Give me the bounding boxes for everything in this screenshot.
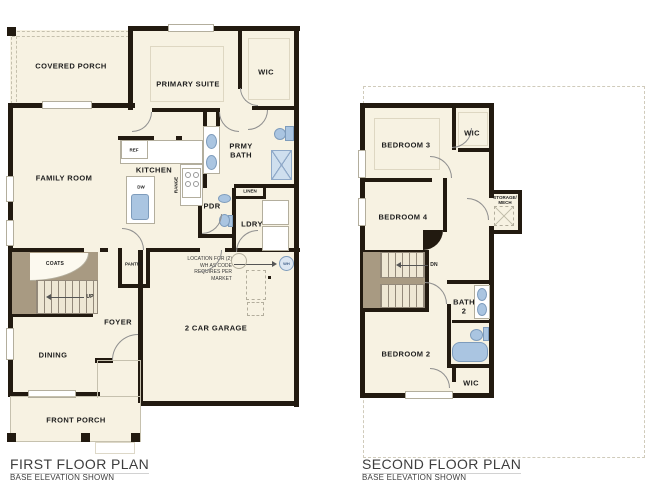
burner: [185, 172, 191, 178]
wall: [452, 368, 456, 382]
burner: [193, 172, 199, 178]
wall: [146, 248, 200, 252]
wh-location-box: [246, 270, 266, 300]
porch-post: [7, 27, 16, 36]
bath2-sink: [477, 303, 487, 316]
wall: [489, 230, 521, 234]
wall: [447, 280, 493, 284]
window: [42, 101, 92, 109]
wall: [360, 178, 432, 182]
toilet-bowl: [470, 329, 483, 341]
toilet-bowl: [274, 128, 286, 140]
range-label: RANGE: [174, 177, 179, 193]
dn-arrow-line: [400, 265, 428, 266]
room-label-garage: 2 CAR GARAGE: [185, 324, 247, 333]
porch-roof-dash: [12, 36, 129, 37]
wall: [198, 234, 236, 238]
first-floor-subtitle: BASE ELEVATION SHOWN: [10, 473, 114, 482]
room-label-foyer: FOYER: [104, 318, 132, 327]
wh-arrowhead: [272, 261, 277, 267]
room-label-primary-suite: PRIMARY SUITE: [156, 80, 220, 89]
floor-plan-canvas: REF RANGE DW LOCATION FOR (2) WH AS CODE…: [0, 0, 650, 487]
room-label-bedroom4: BEDROOM 4: [378, 213, 427, 222]
room-label-prmy-bath: PRMY BATH: [222, 142, 260, 159]
bath-sink: [206, 134, 217, 149]
porch-step: [95, 442, 135, 454]
window: [6, 328, 14, 360]
porch-post: [131, 433, 140, 442]
room-label-dining: DINING: [39, 351, 68, 360]
wall: [360, 103, 494, 108]
wall: [234, 196, 266, 199]
window: [6, 176, 14, 202]
dn-arrowhead: [396, 262, 401, 268]
porch-roof-dash: [11, 32, 12, 104]
window: [405, 391, 453, 399]
wall: [238, 31, 242, 89]
room-label-kitchen: KITCHEN: [136, 166, 172, 175]
wall: [141, 401, 299, 406]
wh-location-box: [247, 302, 264, 316]
bath2-sink: [477, 288, 487, 301]
wall: [234, 184, 298, 188]
wall: [489, 190, 521, 194]
window: [6, 220, 14, 246]
second-floor-subtitle: BASE ELEVATION SHOWN: [362, 473, 466, 482]
window: [358, 198, 366, 226]
room-label-bedroom2: BEDROOM 2: [381, 350, 430, 359]
wall: [118, 248, 122, 288]
room-label-bedroom3: BEDROOM 3: [381, 141, 430, 150]
room-label-wic-lower: WIC: [463, 379, 479, 388]
bathtub: [452, 342, 488, 362]
bath-sink: [206, 155, 217, 170]
wall: [363, 308, 428, 312]
mech-unit-box: [494, 206, 514, 226]
room-label-storage-mech: STORAGE/ MECH: [490, 195, 520, 205]
wall: [128, 26, 300, 31]
suite-rug-outline: [150, 46, 224, 102]
wall: [128, 26, 133, 110]
room-label-pantry: PANTRY: [125, 262, 143, 267]
up-arrow-line: [50, 297, 84, 298]
up-arrowhead: [46, 294, 51, 300]
second-floor-title: SECOND FLOOR PLAN: [362, 456, 521, 474]
window: [358, 150, 366, 178]
wall: [458, 148, 494, 152]
porch-post: [81, 433, 90, 442]
dishwasher-label: DW: [137, 185, 145, 190]
first-floor-title: FIRST FLOOR PLAN: [10, 456, 149, 474]
coats-label: COATS: [46, 261, 64, 267]
wall: [443, 178, 447, 232]
dn-label: DN: [430, 262, 438, 268]
porch-roof-dash: [12, 31, 129, 32]
burner: [185, 181, 191, 187]
room-label-linen: LINEN: [243, 189, 257, 194]
marker-dot: [268, 276, 271, 279]
toilet-tank: [483, 327, 489, 341]
wall: [263, 184, 266, 199]
wall: [294, 26, 299, 407]
porch-post: [7, 433, 16, 442]
shower: [271, 150, 292, 180]
washer: [262, 200, 289, 225]
toilet-tank: [285, 126, 294, 141]
porch-roof-dash: [16, 36, 17, 102]
ref-label: REF: [130, 148, 139, 153]
room-label-front-porch: FRONT PORCH: [46, 416, 105, 425]
wall: [452, 320, 493, 323]
room-label-wic-upper: WIC: [464, 129, 480, 138]
burner: [193, 181, 199, 187]
stairs-down-lower: [380, 284, 425, 308]
wh-location-circle: [231, 253, 247, 269]
window: [168, 24, 214, 32]
wall: [146, 248, 150, 288]
room-label-bath2: BATH 2: [450, 298, 478, 315]
up-label: UP: [86, 294, 93, 300]
room-label-family-room: FAMILY ROOM: [36, 174, 93, 183]
room-label-wic: WIC: [258, 68, 274, 77]
dryer: [262, 226, 289, 251]
front-porch-outline: [97, 360, 141, 398]
wall: [152, 108, 220, 112]
wall: [100, 248, 108, 252]
room-label-pdr: PDR: [203, 202, 220, 211]
room-label-covered-porch: COVERED PORCH: [35, 62, 106, 71]
room-label-ldry: LDRY: [241, 220, 263, 229]
wall: [118, 284, 150, 288]
water-heater-icon: WH: [279, 256, 294, 271]
kitchen-sink: [131, 194, 149, 220]
